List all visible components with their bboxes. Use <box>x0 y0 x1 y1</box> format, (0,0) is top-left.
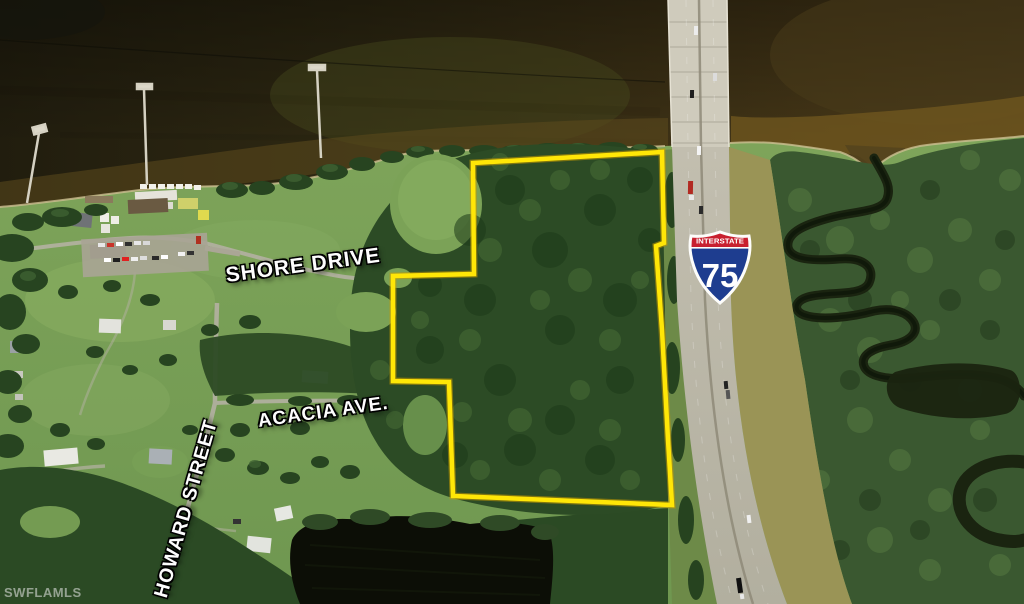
pond <box>290 509 559 604</box>
aerial-listing-photo: SHORE DRIVE ACACIA AVE. HOWARD STREET IN… <box>0 0 1024 604</box>
satellite-imagery <box>0 0 1024 604</box>
interstate-75-shield: INTERSTATE 75 <box>687 230 753 305</box>
shield-banner-text: INTERSTATE <box>696 239 744 246</box>
shield-number: 75 <box>702 257 739 294</box>
mls-watermark: SWFLAMLS <box>4 585 82 600</box>
